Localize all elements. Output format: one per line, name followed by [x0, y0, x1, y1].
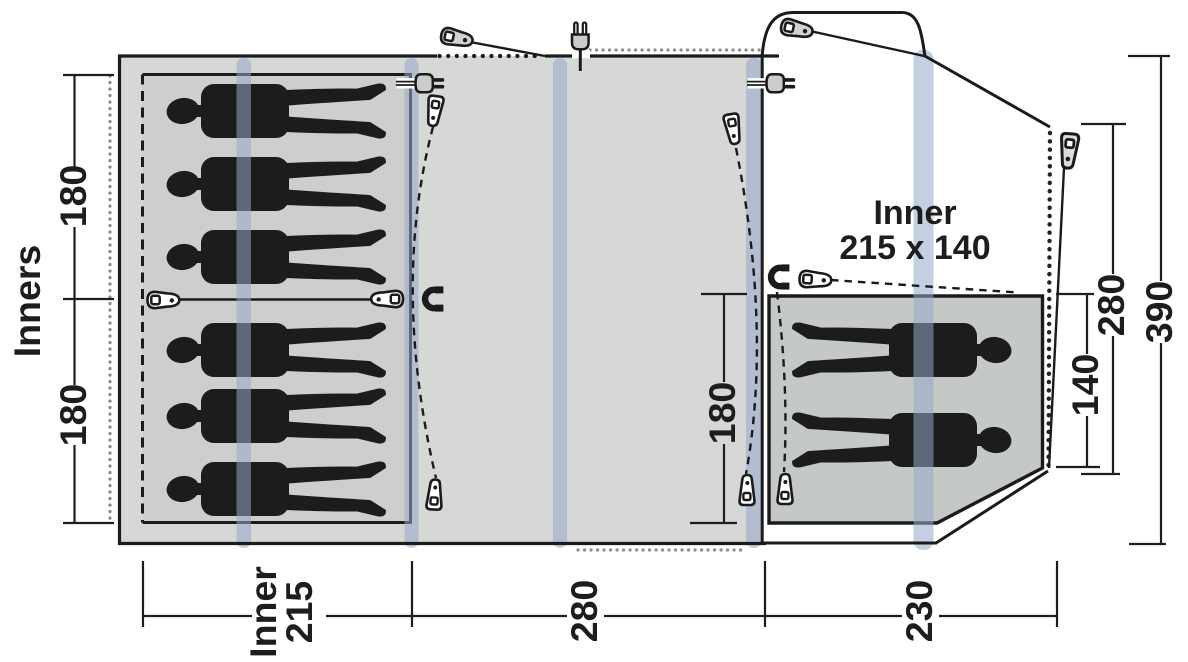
svg-text:280: 280 — [563, 580, 605, 643]
svg-text:Inner: Inner — [873, 194, 956, 232]
svg-text:280: 280 — [1090, 274, 1132, 337]
svg-text:230: 230 — [898, 580, 940, 643]
svg-text:180: 180 — [52, 384, 94, 447]
svg-text:215 x 140: 215 x 140 — [839, 229, 990, 267]
svg-text:180: 180 — [701, 382, 743, 445]
svg-text:390: 390 — [1138, 281, 1180, 344]
svg-text:140: 140 — [1064, 354, 1106, 417]
svg-text:180: 180 — [52, 165, 94, 228]
svg-text:Inners: Inners — [6, 245, 48, 358]
svg-text:215: 215 — [278, 581, 320, 644]
